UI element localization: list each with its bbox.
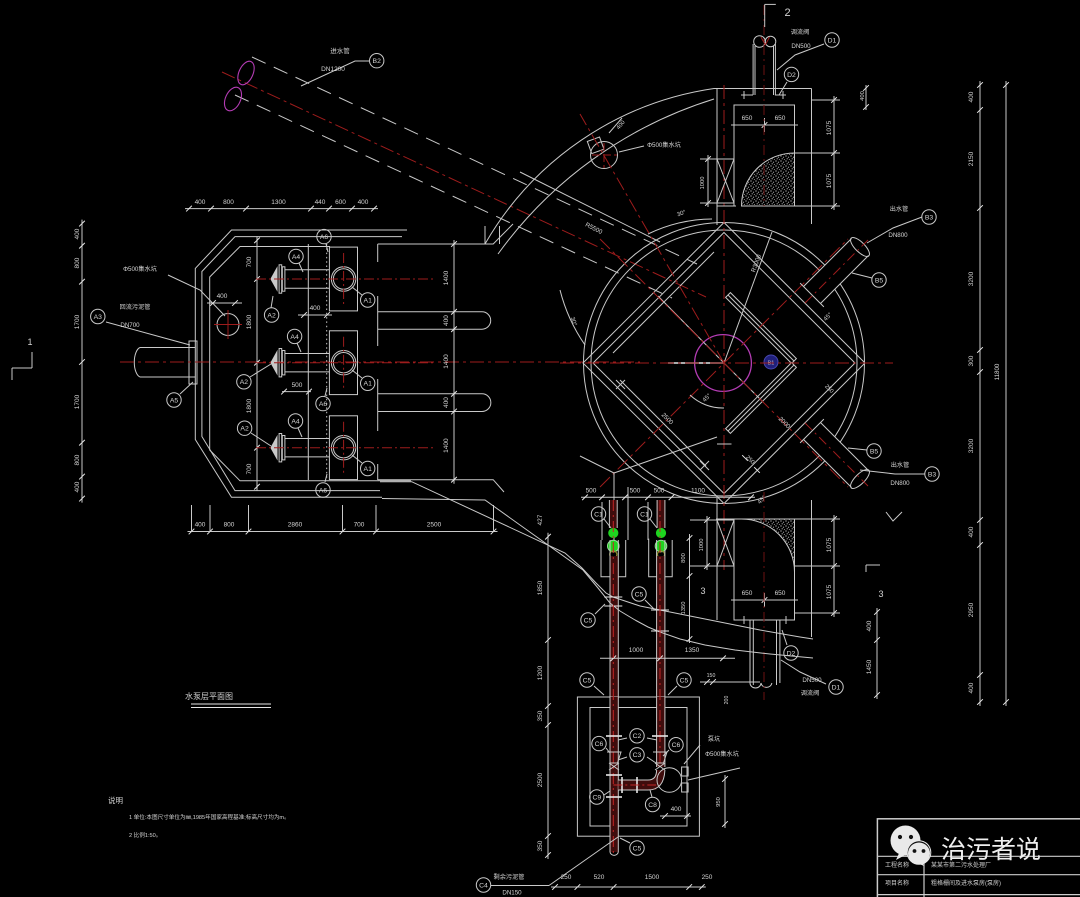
svg-text:剩余污泥管: 剩余污泥管 (494, 873, 525, 881)
svg-text:DN800: DN800 (888, 232, 908, 239)
svg-text:1800: 1800 (246, 314, 253, 329)
svg-text:700: 700 (246, 463, 253, 474)
svg-text:粗格栅间及进水泵房(泵房): 粗格栅间及进水泵房(泵房) (931, 879, 1001, 887)
svg-text:2: 2 (784, 7, 790, 19)
svg-text:400: 400 (217, 293, 228, 300)
svg-text:1400: 1400 (443, 354, 450, 369)
svg-text:400: 400 (195, 522, 206, 529)
svg-text:2500: 2500 (427, 522, 442, 529)
svg-text:650: 650 (775, 590, 786, 597)
svg-text:A1: A1 (364, 381, 373, 388)
svg-text:400: 400 (74, 481, 81, 492)
svg-text:1500: 1500 (645, 874, 660, 881)
svg-text:520: 520 (594, 874, 605, 881)
svg-text:400: 400 (671, 806, 682, 813)
svg-text:C9: C9 (592, 794, 601, 801)
svg-text:1700: 1700 (74, 394, 81, 409)
svg-text:A1: A1 (364, 466, 373, 473)
svg-text:D1: D1 (832, 684, 841, 691)
svg-text:A6: A6 (319, 401, 328, 408)
svg-text:650: 650 (775, 115, 786, 122)
svg-text:1075: 1075 (826, 537, 833, 552)
svg-text:DN500: DN500 (791, 43, 811, 50)
svg-text:3: 3 (878, 589, 883, 599)
svg-text:C6: C6 (595, 741, 604, 748)
svg-text:400: 400 (74, 228, 81, 239)
svg-text:1300: 1300 (271, 199, 286, 206)
svg-text:1000: 1000 (629, 647, 644, 654)
svg-text:600: 600 (335, 199, 346, 206)
svg-text:A1: A1 (364, 297, 373, 304)
svg-text:说明: 说明 (108, 795, 123, 805)
svg-text:C5: C5 (584, 617, 593, 624)
svg-text:1400: 1400 (443, 438, 450, 453)
svg-text:400: 400 (968, 682, 975, 693)
svg-text:650: 650 (742, 590, 753, 597)
svg-text:400: 400 (443, 397, 450, 408)
svg-text:A5: A5 (170, 397, 179, 404)
svg-text:1400: 1400 (443, 270, 450, 285)
svg-text:1075: 1075 (826, 173, 833, 188)
svg-text:出水管: 出水管 (890, 205, 909, 213)
svg-text:200: 200 (724, 696, 730, 705)
svg-text:C4: C4 (479, 882, 488, 889)
svg-text:500: 500 (292, 382, 303, 389)
svg-text:3: 3 (700, 586, 705, 596)
svg-text:1: 1 (27, 337, 32, 347)
svg-text:A4: A4 (290, 334, 299, 341)
svg-text:3200: 3200 (968, 271, 975, 286)
svg-text:800: 800 (224, 522, 235, 529)
svg-text:400: 400 (443, 315, 450, 326)
svg-text:350: 350 (537, 710, 544, 721)
svg-text:治污者说: 治污者说 (941, 836, 1041, 864)
svg-text:800: 800 (223, 199, 234, 206)
svg-text:某某市第二污水处理厂: 某某市第二污水处理厂 (931, 861, 991, 869)
svg-text:250: 250 (561, 874, 572, 881)
svg-text:1075: 1075 (826, 584, 833, 599)
svg-text:调流阀: 调流阀 (801, 689, 820, 697)
svg-text:DN800: DN800 (890, 480, 910, 487)
svg-text:2 比例1:50。: 2 比例1:50。 (129, 831, 161, 839)
svg-text:2150: 2150 (968, 151, 975, 166)
svg-text:进水管: 进水管 (330, 46, 350, 55)
svg-text:1800: 1800 (246, 398, 253, 413)
svg-text:A2: A2 (267, 312, 276, 319)
svg-text:440: 440 (315, 199, 326, 206)
svg-text:250: 250 (702, 874, 713, 881)
svg-text:150: 150 (707, 673, 716, 679)
svg-text:DN1200: DN1200 (321, 66, 345, 73)
svg-text:DN150: DN150 (502, 890, 522, 897)
svg-text:B2: B2 (373, 58, 382, 65)
svg-text:3200: 3200 (968, 438, 975, 453)
svg-text:950: 950 (716, 797, 722, 807)
svg-text:400: 400 (358, 199, 369, 206)
svg-text:1850: 1850 (537, 580, 544, 595)
svg-text:700: 700 (246, 256, 253, 267)
svg-text:C5: C5 (633, 845, 642, 852)
svg-text:500: 500 (654, 488, 665, 495)
svg-text:DN700: DN700 (120, 322, 140, 329)
svg-text:D1: D1 (828, 37, 837, 44)
svg-text:A3: A3 (94, 314, 103, 321)
svg-text:C5: C5 (635, 591, 644, 598)
svg-text:1700: 1700 (74, 314, 81, 329)
svg-text:A4: A4 (291, 418, 300, 425)
svg-text:C3: C3 (633, 752, 642, 759)
svg-text:1000: 1000 (700, 177, 706, 190)
svg-text:B3: B3 (928, 471, 937, 478)
svg-text:400: 400 (195, 199, 206, 206)
svg-text:800: 800 (681, 553, 687, 563)
svg-text:400: 400 (310, 305, 321, 312)
svg-text:11800: 11800 (994, 363, 1001, 380)
svg-text:A2: A2 (240, 379, 249, 386)
svg-text:回流污泥管: 回流污泥管 (120, 303, 151, 311)
svg-text:650: 650 (742, 115, 753, 122)
svg-text:水泵层平面图: 水泵层平面图 (185, 691, 233, 701)
svg-text:B5: B5 (870, 448, 879, 455)
svg-text:500: 500 (586, 488, 597, 495)
svg-text:D2: D2 (787, 72, 796, 79)
svg-text:400: 400 (968, 526, 975, 537)
svg-text:C6: C6 (672, 742, 681, 749)
svg-text:800: 800 (74, 257, 81, 268)
svg-text:1 单位:本图尺寸单位为㎜,1985年国家高程基准;标高尺: 1 单位:本图尺寸单位为㎜,1985年国家高程基准;标高尺寸均为m。 (129, 813, 290, 821)
svg-text:400: 400 (866, 620, 873, 631)
svg-text:500: 500 (630, 488, 641, 495)
svg-text:泵坑: 泵坑 (708, 735, 720, 743)
svg-text:1350: 1350 (681, 602, 687, 615)
svg-text:A6: A6 (320, 234, 329, 241)
svg-text:400: 400 (860, 91, 866, 101)
svg-text:800: 800 (74, 454, 81, 465)
svg-text:B5: B5 (875, 277, 884, 284)
svg-text:Φ500集水坑: Φ500集水坑 (647, 141, 681, 149)
svg-text:1100: 1100 (691, 488, 705, 495)
svg-text:1350: 1350 (685, 647, 700, 654)
svg-text:2500: 2500 (537, 772, 544, 787)
svg-text:A2: A2 (240, 426, 249, 433)
svg-text:Φ500集水坑: Φ500集水坑 (705, 750, 739, 758)
svg-text:A4: A4 (292, 254, 301, 261)
svg-text:1450: 1450 (866, 659, 873, 674)
svg-text:出水管: 出水管 (891, 461, 910, 469)
svg-text:1075: 1075 (826, 120, 833, 135)
svg-text:700: 700 (354, 522, 365, 529)
svg-text:427: 427 (537, 514, 544, 525)
svg-text:1000: 1000 (699, 539, 705, 552)
svg-text:工程名称: 工程名称 (885, 861, 909, 869)
svg-text:350: 350 (537, 840, 544, 851)
svg-text:C2: C2 (633, 733, 642, 740)
svg-text:B3: B3 (925, 214, 934, 221)
svg-text:调流阀: 调流阀 (791, 28, 810, 36)
svg-text:项目名称: 项目名称 (885, 879, 909, 887)
svg-text:1200: 1200 (537, 665, 544, 680)
svg-text:C5: C5 (583, 677, 592, 684)
svg-text:C8: C8 (648, 802, 657, 809)
svg-text:C5: C5 (680, 677, 689, 684)
svg-text:Φ500集水坑: Φ500集水坑 (123, 265, 157, 273)
svg-text:300: 300 (968, 355, 975, 366)
svg-text:2860: 2860 (288, 522, 303, 529)
svg-text:2950: 2950 (968, 602, 975, 617)
svg-text:400: 400 (968, 91, 975, 102)
svg-text:A6: A6 (319, 487, 328, 494)
